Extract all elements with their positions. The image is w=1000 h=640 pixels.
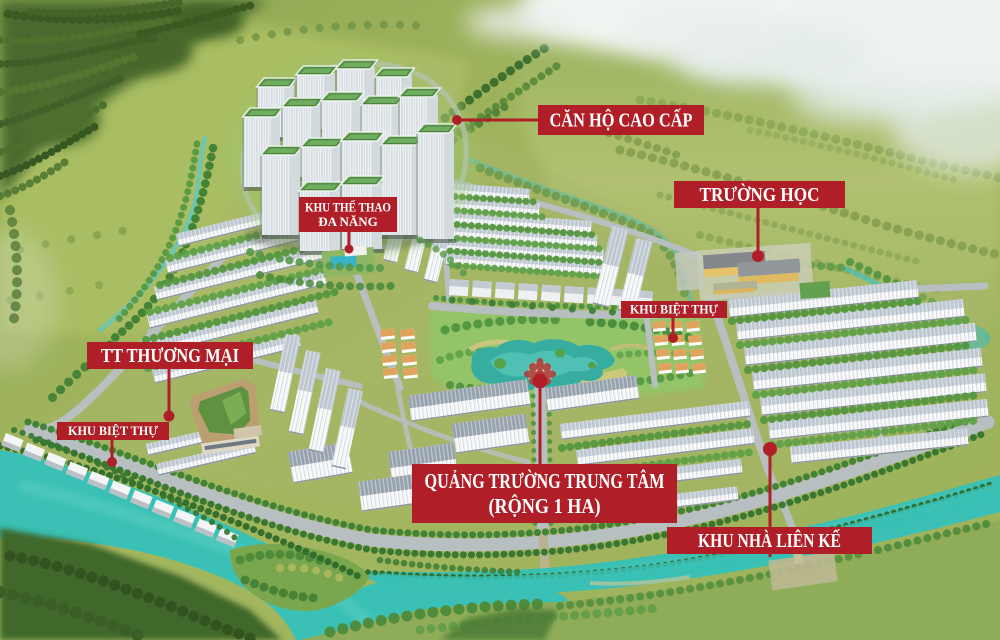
svg-text:KHU NHÀ LIÊN KẾ: KHU NHÀ LIÊN KẾ [698,528,841,552]
svg-text:ĐA NĂNG: ĐA NĂNG [318,214,378,229]
svg-text:TRƯỜNG HỌC: TRƯỜNG HỌC [700,182,820,206]
svg-text:QUẢNG TRƯỜNG TRUNG TÂM: QUẢNG TRƯỜNG TRUNG TÂM [425,469,665,493]
svg-text:KHU THỂ THAO: KHU THỂ THAO [305,199,391,214]
svg-text:(RỘNG 1 HA): (RỘNG 1 HA) [489,494,601,518]
svg-text:KHU BIỆT THỰ: KHU BIỆT THỰ [68,423,159,438]
svg-text:KHU BIỆT THỰ: KHU BIỆT THỰ [630,303,719,317]
svg-text:TT THƯƠNG MẠI: TT THƯƠNG MẠI [101,345,239,367]
svg-text:CĂN HỘ CAO CẤP: CĂN HỘ CAO CẤP [550,107,693,131]
